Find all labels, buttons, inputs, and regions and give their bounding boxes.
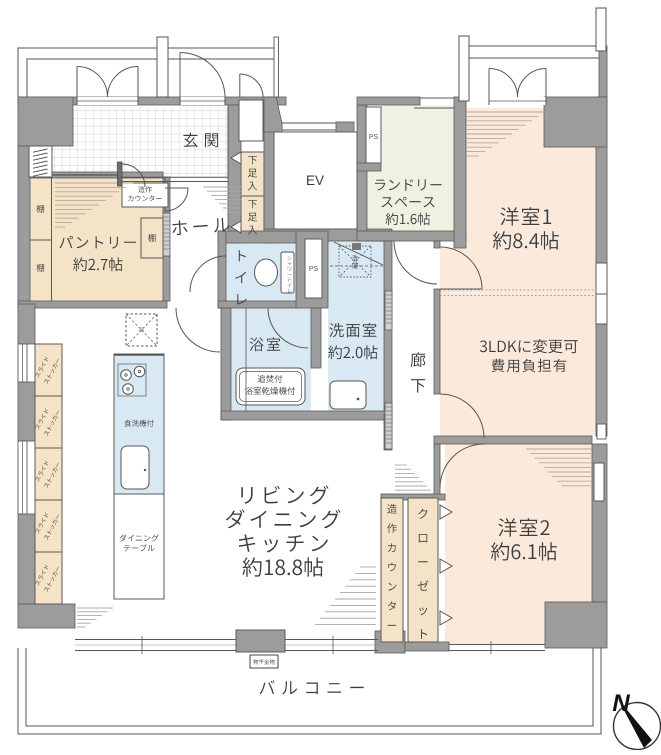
svg-text:N: N <box>612 690 630 717</box>
svg-text:PS: PS <box>309 266 319 273</box>
svg-text:EV: EV <box>306 173 324 188</box>
svg-text:PS: PS <box>369 134 379 141</box>
